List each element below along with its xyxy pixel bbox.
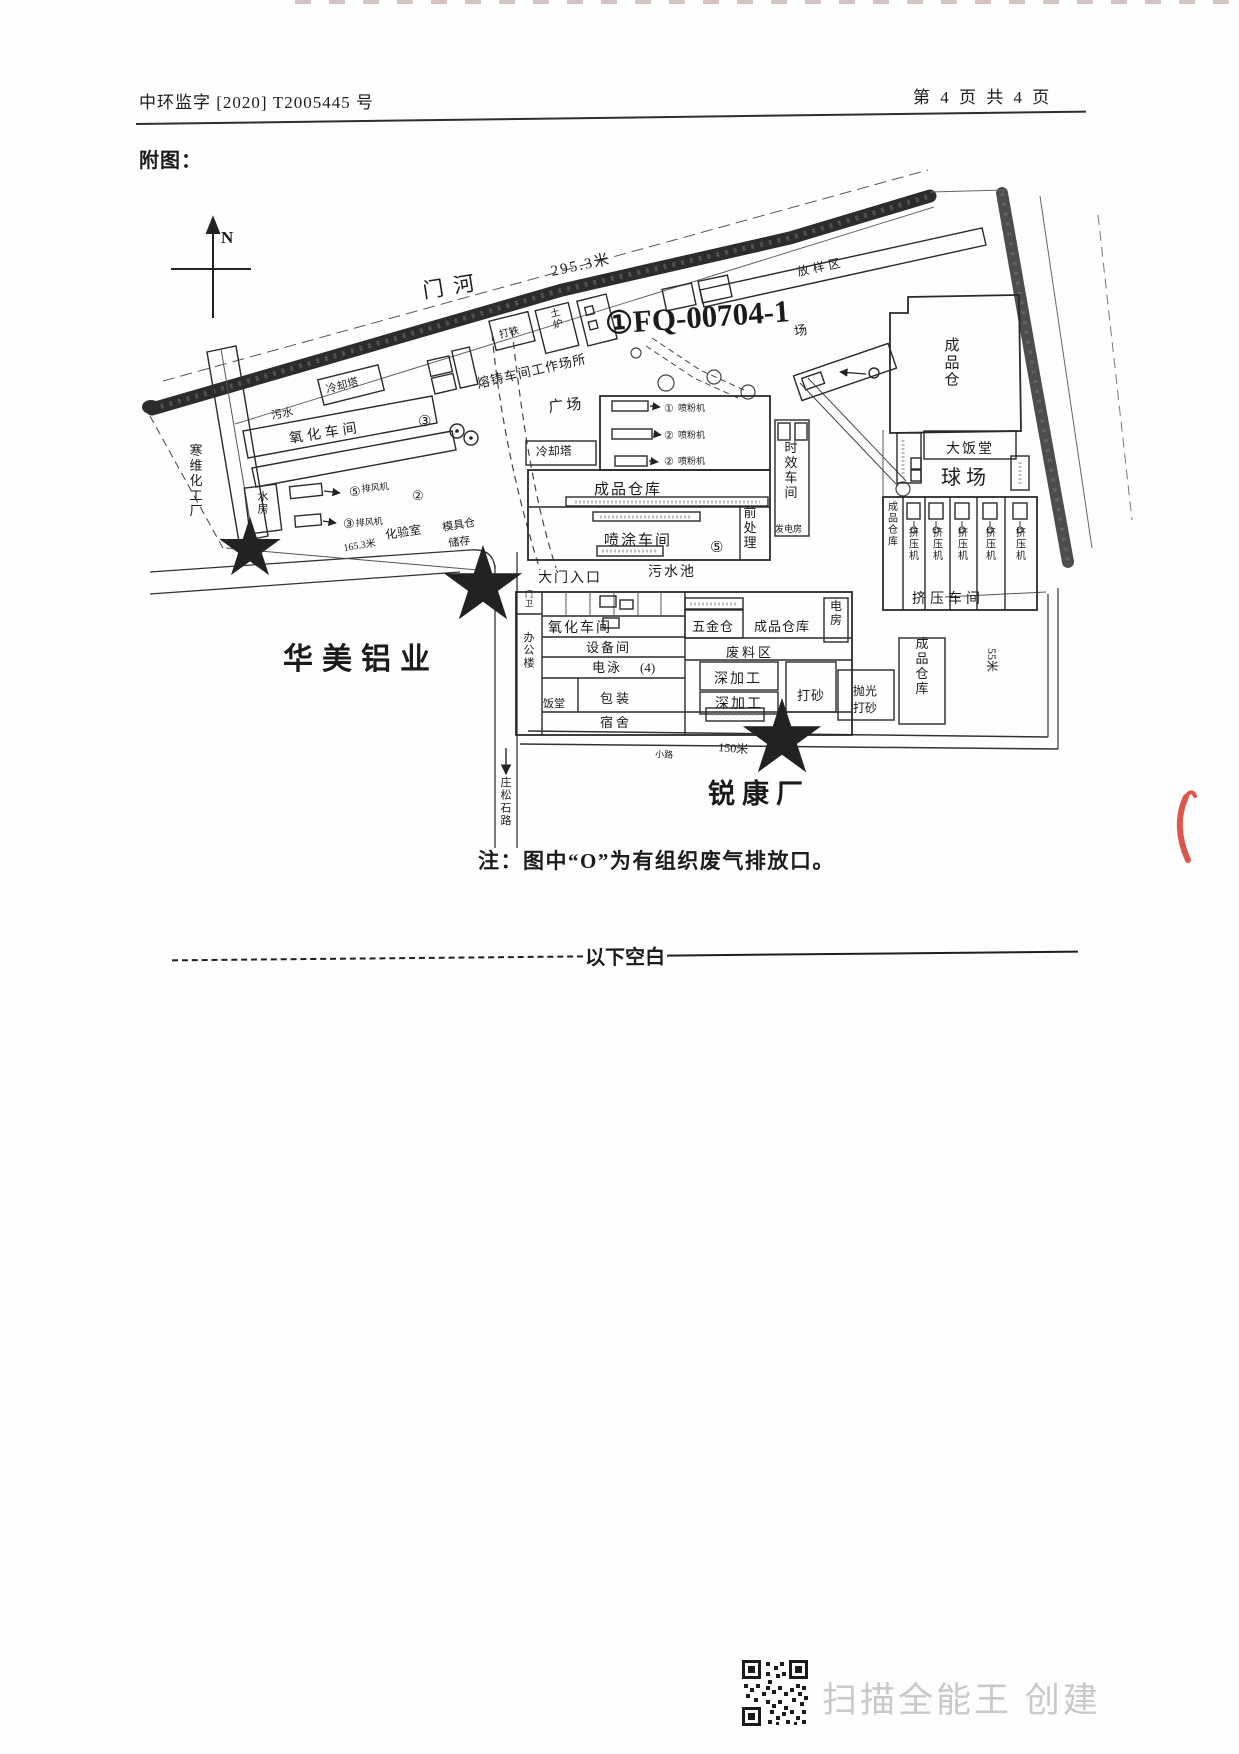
map-label-41: ② (664, 456, 674, 468)
qr-code (742, 1660, 808, 1726)
map-label-56: 深加工 (714, 671, 762, 687)
west-outlet-arrows (289, 483, 340, 527)
map-label-32: 成品仓库 (594, 481, 662, 498)
map-label-59: 抛光 (853, 683, 877, 698)
map-label-45: 挤压机 (933, 526, 943, 562)
map-label-7: 打铁 (498, 323, 521, 340)
map-label-8: 土炉 (549, 305, 565, 331)
map-label-12: 氧化车间 (288, 419, 362, 447)
map-label-26: 成品仓 (944, 337, 959, 389)
map-label-18: 排风机 (361, 480, 389, 494)
map-labels: N门河295.3米①FQ-00704-1场放样区熔铸车间工作场所打铁土炉广场冷却… (189, 228, 1026, 827)
map-label-21: ② (412, 488, 424, 503)
map-label-5: 放样区 (796, 254, 846, 279)
map-label-23: 模具仓 (441, 515, 476, 534)
map-label-49: 挤压车间 (912, 590, 984, 607)
map-label-11: 冷却塔 (536, 444, 572, 459)
north-compass-icon (171, 218, 251, 318)
map-label-30: 发电房 (775, 523, 802, 534)
map-label-66: 饭堂 (543, 697, 565, 710)
map-label-48: 挤压机 (1016, 526, 1026, 562)
map-label-1: 门河 (421, 270, 486, 303)
map-label-34: ⑤ (710, 540, 723, 556)
map-label-65: 包装 (600, 691, 632, 706)
map-label-10: 冷却塔 (325, 375, 360, 396)
map-label-37: ① (664, 403, 674, 415)
map-note: 注：图中“O”为有组织废气排放口。 (478, 845, 835, 875)
map-label-20: 排风机 (355, 515, 383, 528)
map-label-54: 成品仓库 (754, 619, 810, 634)
map-label-71: 锐康厂 (708, 778, 810, 809)
site-plan-map: N门河295.3米①FQ-00704-1场放样区熔铸车间工作场所打铁土炉广场冷却… (0, 0, 1239, 1754)
map-label-4: 场 (793, 322, 808, 339)
map-label-53: 五金仓 (692, 619, 734, 634)
map-label-17: ⑤ (349, 484, 361, 499)
map-label-61: 氧化车间 (548, 619, 612, 636)
map-label-28: 球场 (941, 466, 991, 489)
red-pen-mark (1180, 792, 1195, 860)
divider-label: 以下空白 (585, 941, 665, 971)
map-label-44: 挤压机 (909, 526, 919, 562)
map-label-35: 大门入口 (538, 570, 602, 586)
scanned-document-page: 中环监字 [2020] T2005445 号 第 4 页 共 4 页 附图： (0, 0, 1239, 1754)
map-label-9: 广场 (548, 395, 586, 416)
map-label-47: 挤压机 (986, 526, 996, 562)
map-label-25: 165.3米 (342, 536, 376, 554)
northeast-buildings (883, 295, 1037, 724)
map-label-39: ② (664, 430, 674, 442)
map-label-46: 挤压机 (958, 526, 968, 562)
map-label-14: 污水 (270, 405, 294, 422)
map-label-13: ③ (418, 414, 431, 430)
map-label-29: 时效车间 (784, 440, 797, 500)
map-label-68: 办公楼 (524, 631, 535, 669)
map-label-19: ③ (343, 516, 355, 531)
map-label-70: 华美铝业 (283, 642, 439, 676)
map-label-43: 成品仓库 (888, 501, 898, 548)
map-label-63: 电泳 (592, 660, 622, 675)
map-label-69: 门卫 (525, 589, 533, 608)
map-label-51: 55米 (985, 648, 999, 672)
map-label-72: 庄松石路 (501, 775, 512, 827)
map-label-58: 打砂 (797, 688, 825, 703)
map-label-55: 废料区 (726, 645, 774, 660)
map-label-36: 污水池 (648, 564, 696, 580)
map-label-24: 储存 (447, 533, 471, 550)
map-label-62: 设备间 (586, 640, 631, 655)
map-label-60: 打砂 (853, 701, 877, 715)
map-label-67: 宿舍 (600, 715, 632, 730)
map-label-16: 水房 (258, 490, 269, 516)
map-label-64: (4) (640, 660, 655, 675)
map-label-33: 喷涂车间 (604, 532, 672, 549)
map-label-6: 熔铸车间工作场所 (475, 351, 588, 391)
map-label-52: 电房 (830, 599, 842, 627)
map-label-0: N (221, 228, 234, 247)
map-label-73: 150米 (718, 740, 749, 757)
map-label-27: 大饭堂 (946, 441, 994, 457)
map-label-31: 前处理 (743, 505, 756, 550)
map-label-50: 成品仓库 (915, 636, 928, 696)
scanner-watermark: 扫描全能王 创建 (822, 1672, 1101, 1723)
map-label-22: 化验室 (384, 522, 422, 542)
map-label-42: 喷粉机 (678, 455, 705, 466)
map-label-38: 喷粉机 (678, 402, 705, 413)
map-label-74: 小路 (655, 748, 674, 760)
divider-solid-line (667, 950, 1078, 956)
map-label-40: 喷粉机 (678, 429, 705, 440)
map-label-15: 寒维化工厂 (189, 443, 202, 518)
map-label-57: 深加工 (715, 696, 763, 712)
divider-dash-line (172, 955, 583, 961)
